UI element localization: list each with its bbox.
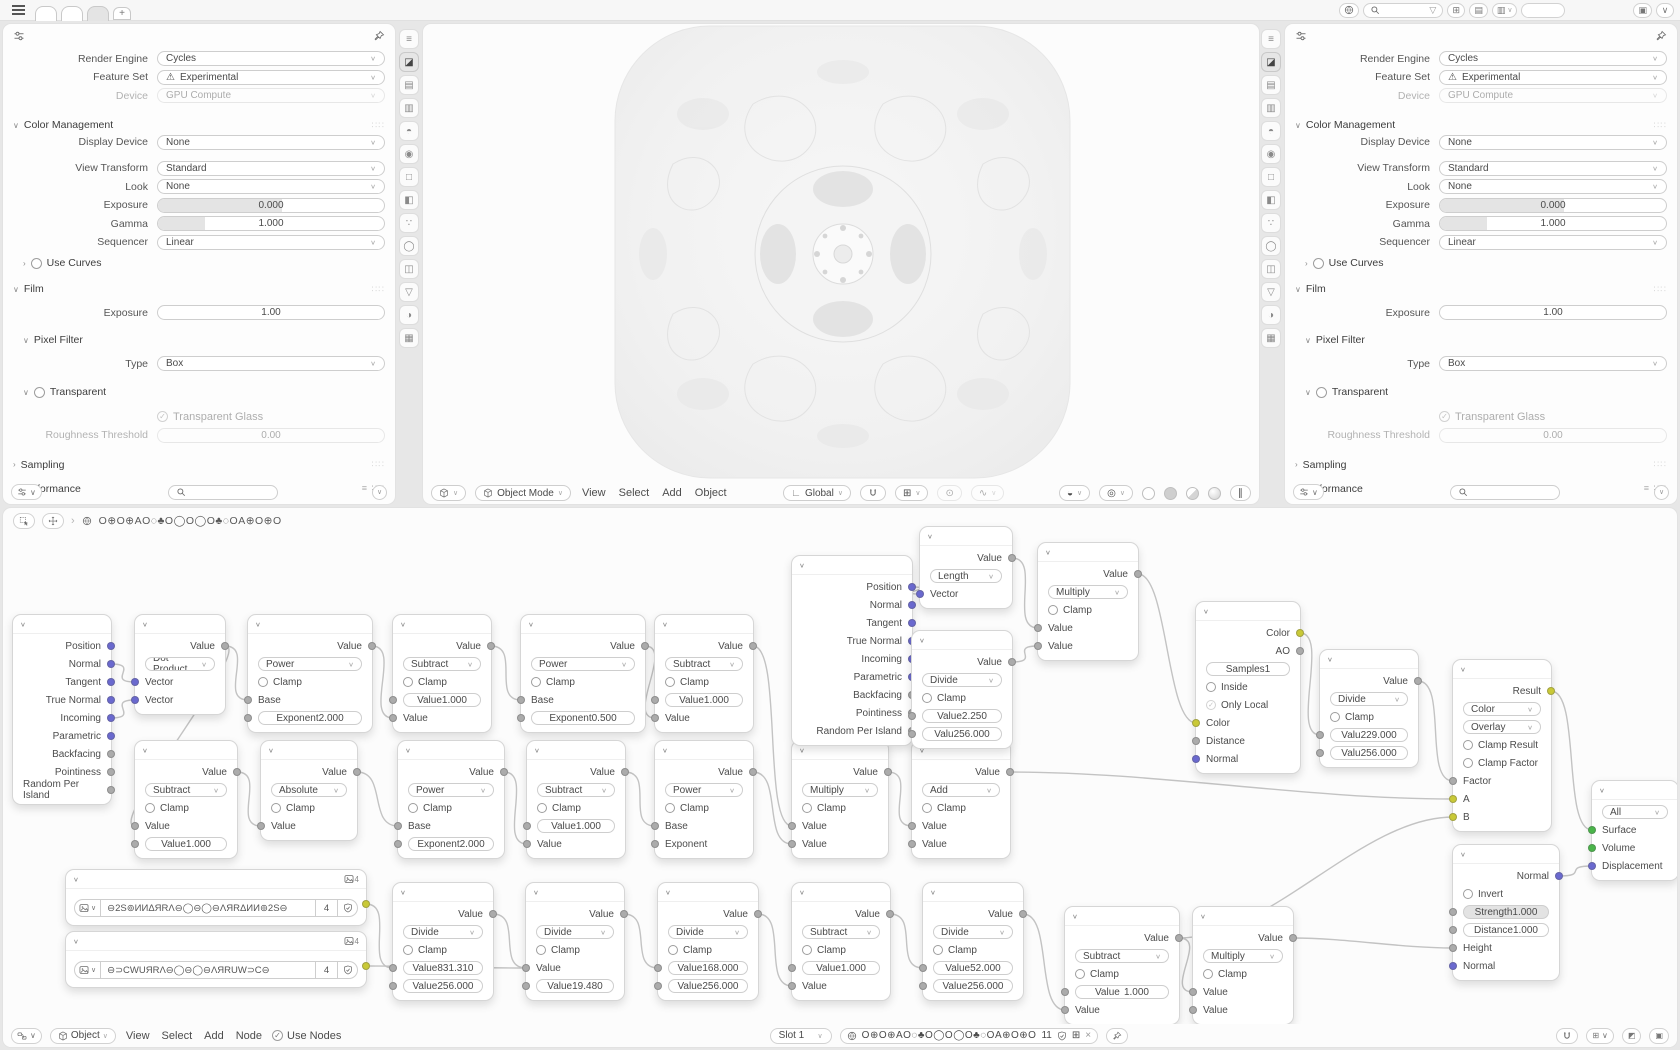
output-socket[interactable] [1006, 768, 1014, 776]
editor-type-button[interactable]: ∨ [1293, 484, 1324, 500]
checkbox-clamp[interactable] [408, 803, 418, 813]
node-geo2[interactable]: ∨PositionNormalTangentTrue NormalIncomin… [791, 555, 913, 746]
properties-tab-data[interactable]: ▽ [1261, 282, 1281, 302]
output-socket[interactable] [754, 910, 762, 918]
node-div19[interactable]: ∨ValueDivide∨ClampValu229.000Valu256.000 [1319, 649, 1419, 768]
input-socket[interactable] [1588, 826, 1596, 834]
properties-tab-physics[interactable]: ◯ [399, 236, 419, 256]
input-socket[interactable] [1061, 1006, 1069, 1014]
snap-settings-dropdown[interactable]: ⊞∨ [895, 485, 929, 501]
use-nodes-checkbox[interactable]: ✓Use Nodes [272, 1030, 341, 1042]
checkbox-clamp[interactable] [536, 945, 546, 955]
gamma-slider[interactable]: 1.000 [157, 216, 385, 231]
input-socket[interactable] [1192, 719, 1200, 727]
value-field-value[interactable]: Value831.310 [403, 961, 483, 975]
properties-search-input[interactable] [168, 485, 278, 500]
input-socket[interactable] [1449, 777, 1457, 785]
value-field-value[interactable]: Value1.000 [665, 693, 743, 707]
value-field-valu[interactable]: Valu229.000 [1330, 728, 1408, 742]
checkbox-clamp[interactable] [802, 945, 812, 955]
section-sampling[interactable]: ›Sampling∷∷ [1295, 459, 1667, 471]
node-div25[interactable]: ∨ValueDivide∨ClampValueValue19.480 [525, 882, 625, 1001]
menu-add[interactable]: Add [660, 487, 684, 499]
node-imgA[interactable]: ∨4∨⊖2S⊚ИИΔЯRΛ⊖◯⊖◯⊖ΛЯRΔИИ⊚2S⊖4 [65, 869, 367, 926]
collapse-arrow-icon[interactable]: ∨ [142, 746, 148, 753]
value-field-value[interactable]: Value2.250 [922, 709, 1002, 723]
checkbox-inside[interactable] [1206, 682, 1216, 692]
collapse-arrow-icon[interactable]: ∨ [930, 888, 936, 895]
properties-tab-output[interactable]: ▤ [1261, 75, 1281, 95]
move-tool-icon[interactable] [42, 513, 64, 529]
section-transparent[interactable]: ∨Transparent [23, 386, 385, 398]
input-socket[interactable] [788, 840, 796, 848]
menu-view[interactable]: View [124, 1030, 152, 1042]
properties-tab-data[interactable]: ▽ [399, 282, 419, 302]
value-field-value[interactable]: Value168.000 [668, 961, 748, 975]
node-div17[interactable]: ∨ValueDivide∨ClampValue2.250Valu256.000 [911, 630, 1013, 749]
operation-dropdown-divide[interactable]: Divide∨ [536, 925, 614, 939]
input-socket[interactable] [1189, 988, 1197, 996]
checkbox-clamp[interactable] [145, 803, 155, 813]
checkbox-only-local[interactable]: ✓ [1206, 700, 1216, 710]
shading-wireframe-button[interactable] [1142, 487, 1155, 500]
properties-tab-object[interactable]: □ [1261, 167, 1281, 187]
checkbox-clamp[interactable] [665, 677, 675, 687]
material-slot-dropdown[interactable]: Slot 1∨ [770, 1028, 832, 1044]
output-socket[interactable] [749, 642, 757, 650]
paste-icon[interactable]: ▤ [1469, 3, 1488, 18]
input-socket[interactable] [1192, 755, 1200, 763]
value-field-value[interactable]: Value256.000 [933, 979, 1013, 993]
input-socket[interactable] [394, 840, 402, 848]
screen-icon[interactable]: ▣ [1633, 3, 1652, 18]
node-sub6[interactable]: ∨ValueSubtract∨ClampValue1.000Value [654, 614, 754, 733]
properties-tab-output[interactable]: ▤ [399, 75, 419, 95]
snap-toggle[interactable] [860, 485, 886, 501]
output-socket[interactable] [1555, 872, 1563, 880]
operation-dropdown-dot-product[interactable]: Dot Product∨ [145, 657, 215, 671]
input-socket[interactable] [651, 840, 659, 848]
properties-tab-texture[interactable]: ▦ [1261, 328, 1281, 348]
input-socket[interactable] [1449, 795, 1457, 803]
node-imgB[interactable]: ∨4∨⊖⊃CWUЯRΛ⊖◯⊖◯⊖ΛЯRUW⊃C⊖4 [65, 931, 367, 988]
properties-tab-tool[interactable]: ≡ [1261, 29, 1281, 49]
menu-view[interactable]: View [580, 487, 608, 499]
node-sub7[interactable]: ∨ValueSubtract∨ClampValueValue1.000 [134, 740, 238, 859]
operation-dropdown-subtract[interactable]: Subtract∨ [403, 657, 481, 671]
checkbox-clamp[interactable] [1048, 605, 1058, 615]
unlink-material-icon[interactable]: × [1085, 1030, 1091, 1041]
output-socket[interactable] [1296, 629, 1304, 637]
browse-image-button[interactable]: ∨ [74, 961, 101, 979]
output-socket[interactable] [641, 642, 649, 650]
node-mul30[interactable]: ∨ValueMultiply∨ClampValueValue [1192, 906, 1294, 1025]
operation-dropdown-add[interactable]: Add∨ [922, 783, 1000, 797]
transparent-checkbox[interactable] [34, 387, 45, 398]
film-exposure-slider[interactable]: 1.00 [1439, 305, 1667, 320]
copy-icon[interactable]: ⊞ [1447, 3, 1465, 18]
device-dropdown[interactable]: GPU Compute∨ [157, 88, 385, 103]
input-socket[interactable] [1061, 988, 1069, 996]
checkbox-clamp[interactable] [403, 677, 413, 687]
collapse-arrow-icon[interactable]: ∨ [1599, 786, 1605, 793]
input-socket[interactable] [908, 730, 916, 738]
collapse-arrow-icon[interactable]: ∨ [268, 746, 274, 753]
collapse-arrow-icon[interactable]: ∨ [1460, 850, 1466, 857]
value-field-valu[interactable]: Valu256.000 [922, 727, 1002, 741]
output-socket[interactable] [1175, 934, 1183, 942]
node-pow9[interactable]: ∨ValuePower∨ClampBaseExponent2.000 [397, 740, 505, 859]
checkbox-clamp[interactable] [1330, 712, 1340, 722]
input-socket[interactable] [244, 714, 252, 722]
value-field-value[interactable]: Value19.480 [536, 979, 614, 993]
properties-tab-scene[interactable]: ◓ [399, 121, 419, 141]
properties-search-input[interactable] [1450, 485, 1560, 500]
operation-dropdown-absolute[interactable]: Absolute∨ [271, 783, 347, 797]
node-len15[interactable]: ∨ValueLength∨Vector [919, 526, 1013, 609]
input-socket[interactable] [908, 712, 916, 720]
checkbox-clamp[interactable] [271, 803, 281, 813]
node-canvas[interactable]: ∨PositionNormalTangentTrue NormalIncomin… [3, 508, 1677, 1047]
filter-type-dropdown[interactable]: Box∨ [1439, 356, 1667, 371]
value-field-value[interactable]: Value1.000 [403, 693, 481, 707]
fake-user-shield-icon[interactable] [338, 899, 358, 917]
collapse-arrow-icon[interactable]: ∨ [662, 746, 668, 753]
node-mul12[interactable]: ∨ValueMultiply∨ClampValueValue [791, 740, 889, 859]
region-toggle[interactable]: ▣ [1649, 1028, 1669, 1044]
checkbox-clamp[interactable] [258, 677, 268, 687]
value-field-strength[interactable]: Strength1.000 [1463, 905, 1549, 919]
output-socket[interactable] [353, 768, 361, 776]
transparent-checkbox[interactable] [1316, 387, 1327, 398]
viewport-canvas[interactable] [423, 24, 1259, 504]
section-sampling[interactable]: ›Sampling∷∷ [13, 459, 385, 471]
checkbox-clamp[interactable] [922, 803, 932, 813]
collapse-arrow-icon[interactable]: ∨ [1460, 665, 1466, 672]
output-socket[interactable] [886, 910, 894, 918]
checkbox-clamp[interactable] [922, 693, 932, 703]
collapse-arrow-icon[interactable]: ∨ [1072, 912, 1078, 919]
operation-dropdown-subtract[interactable]: Subtract∨ [802, 925, 880, 939]
output-socket[interactable] [1547, 687, 1555, 695]
input-socket[interactable] [1316, 731, 1324, 739]
editor-type-button[interactable]: ∨ [11, 484, 42, 500]
collapse-arrow-icon[interactable]: ∨ [533, 888, 539, 895]
properties-tab-constraints[interactable]: ◫ [399, 259, 419, 279]
collapse-arrow-icon[interactable]: ∨ [400, 888, 406, 895]
fake-user-shield-icon[interactable] [338, 961, 358, 979]
input-socket[interactable] [1034, 624, 1042, 632]
xray-toggle[interactable]: ◒∨ [1059, 485, 1090, 501]
collapse-arrow-icon[interactable]: ∨ [919, 636, 925, 643]
pin-icon[interactable] [373, 30, 385, 42]
roughness-threshold-slider[interactable]: 0.00 [157, 428, 385, 443]
value-field-value[interactable]: Value1.000 [802, 961, 880, 975]
editor-type-button[interactable]: ∨ [11, 1028, 42, 1044]
shader-type-dropdown[interactable]: Object∨ [50, 1028, 116, 1044]
operation-dropdown-color[interactable]: Color∨ [1463, 702, 1541, 716]
node-pow11[interactable]: ∨ValuePower∨ClampBaseExponent [654, 740, 754, 859]
input-socket[interactable] [389, 714, 397, 722]
node-geo1[interactable]: ∨PositionNormalTangentTrue NormalIncomin… [12, 614, 112, 805]
properties-tab-material[interactable]: ◑ [399, 305, 419, 325]
input-socket[interactable] [517, 714, 525, 722]
output-socket[interactable] [1289, 934, 1297, 942]
input-socket[interactable] [131, 840, 139, 848]
output-socket[interactable] [500, 768, 508, 776]
scene-icon[interactable] [1339, 3, 1359, 18]
editor-type-button[interactable]: ∨ [431, 485, 466, 501]
film-exposure-slider[interactable]: 1.00 [157, 305, 385, 320]
menu-select[interactable]: Select [617, 487, 652, 499]
menu-icon[interactable] [12, 9, 25, 11]
output-socket[interactable] [1414, 677, 1422, 685]
section-use-curves[interactable]: ›Use Curves [23, 257, 385, 269]
options-chevron-icon[interactable]: ∨ [1654, 485, 1669, 500]
device-dropdown[interactable]: GPU Compute∨ [1439, 88, 1667, 103]
output-socket[interactable] [620, 910, 628, 918]
value-field-exponent[interactable]: Exponent2.000 [258, 711, 362, 725]
workspace-tab-1[interactable] [35, 6, 57, 21]
operation-dropdown-subtract[interactable]: Subtract∨ [537, 783, 615, 797]
collapse-arrow-icon[interactable]: ∨ [20, 620, 26, 627]
view-transform-dropdown[interactable]: Standard∨ [1439, 161, 1667, 176]
value-field-value[interactable]: Value1.000 [1075, 985, 1169, 999]
input-socket[interactable] [916, 590, 924, 598]
properties-tab-render[interactable]: ◪ [399, 52, 419, 72]
collapse-arrow-icon[interactable]: ∨ [799, 746, 805, 753]
operation-dropdown-divide[interactable]: Divide∨ [933, 925, 1013, 939]
operation-dropdown-all[interactable]: All∨ [1602, 805, 1668, 819]
input-socket[interactable] [651, 696, 659, 704]
output-socket[interactable] [487, 642, 495, 650]
node-mul16[interactable]: ∨ValueMultiply∨ClampValueValue [1037, 542, 1139, 661]
node-div24[interactable]: ∨ValueDivide∨ClampValue831.310Value256.0… [392, 882, 494, 1001]
mode-dropdown[interactable]: Object Mode∨ [475, 485, 571, 501]
transform-orientation-dropdown[interactable]: ∟Global∨ [783, 485, 851, 501]
input-socket[interactable] [1192, 737, 1200, 745]
checkbox-clamp[interactable] [1075, 969, 1085, 979]
checkbox-clamp[interactable] [802, 803, 812, 813]
node-pow3[interactable]: ∨ValuePower∨ClampBaseExponent2.000 [247, 614, 373, 733]
operation-dropdown-overlay[interactable]: Overlay∨ [1463, 720, 1541, 734]
input-socket[interactable] [131, 822, 139, 830]
collapse-arrow-icon[interactable]: ∨ [534, 746, 540, 753]
value-field-value[interactable]: Value256.000 [403, 979, 483, 993]
input-socket[interactable] [389, 696, 397, 704]
sequencer-dropdown[interactable]: Linear∨ [1439, 235, 1667, 250]
pin-icon[interactable] [1106, 1028, 1128, 1044]
material-users-count[interactable]: 11 [1041, 1030, 1051, 1041]
operation-dropdown-subtract[interactable]: Subtract∨ [145, 783, 227, 797]
options-chevron-icon[interactable]: ∨ [372, 485, 387, 500]
input-socket[interactable] [131, 696, 139, 704]
operation-dropdown-divide[interactable]: Divide∨ [668, 925, 748, 939]
overlay-toggle[interactable]: ◩ [1622, 1028, 1642, 1044]
output-socket[interactable] [908, 583, 916, 591]
properties-tab-world[interactable]: ◉ [1261, 144, 1281, 164]
output-socket[interactable] [1008, 554, 1016, 562]
value-field-samples[interactable]: Samples1 [1206, 662, 1290, 676]
section-color-management[interactable]: ∨Color Management∷∷ [1295, 119, 1667, 131]
shading-rendered-button[interactable] [1208, 487, 1221, 500]
operation-dropdown-multiply[interactable]: Multiply∨ [1203, 949, 1283, 963]
overlays-dropdown[interactable]: ◎∨ [1099, 485, 1133, 501]
output-socket[interactable] [107, 696, 115, 704]
output-socket[interactable] [1296, 647, 1304, 655]
properties-tab-particles[interactable]: ∵ [1261, 213, 1281, 233]
operation-dropdown-subtract[interactable]: Subtract∨ [1075, 949, 1169, 963]
menu-add[interactable]: Add [202, 1030, 226, 1042]
properties-tab-object[interactable]: □ [399, 167, 419, 187]
node-mix20[interactable]: ∨ResultColor∨Overlay∨Clamp ResultClamp F… [1452, 659, 1552, 832]
proportional-editing-toggle[interactable]: ⊙ [937, 485, 961, 501]
collapse-arrow-icon[interactable]: ∨ [799, 561, 805, 568]
value-field-value[interactable]: Value256.000 [668, 979, 748, 993]
node-sub27[interactable]: ∨ValueSubtract∨ClampValue1.000Value [791, 882, 891, 1001]
pause-render-button[interactable]: ∥ [1230, 485, 1251, 501]
input-socket[interactable] [908, 840, 916, 848]
workspace-tab-3[interactable] [87, 6, 109, 21]
output-socket[interactable] [107, 786, 115, 794]
checkbox-clamp[interactable] [665, 803, 675, 813]
input-socket[interactable] [919, 964, 927, 972]
input-socket[interactable] [788, 982, 796, 990]
output-socket[interactable] [362, 962, 370, 970]
section-film[interactable]: ∨Film∷∷ [1295, 283, 1667, 295]
operation-dropdown-divide[interactable]: Divide∨ [1330, 692, 1408, 706]
input-socket[interactable] [1449, 926, 1457, 934]
snap-settings-dropdown[interactable]: ⊞ ∨ [1586, 1028, 1614, 1044]
render-engine-dropdown[interactable]: Cycles∨ [1439, 51, 1667, 66]
feature-set-dropdown[interactable]: ⚠Experimental∨ [157, 70, 385, 85]
menu-node[interactable]: Node [234, 1030, 264, 1042]
collapse-arrow-icon[interactable]: ∨ [1200, 912, 1206, 919]
proportional-falloff-dropdown[interactable]: ∿∨ [971, 485, 1005, 501]
input-socket[interactable] [522, 964, 530, 972]
render-engine-dropdown[interactable]: Cycles∨ [157, 51, 385, 66]
input-socket[interactable] [1449, 962, 1457, 970]
collapse-arrow-icon[interactable]: ∨ [528, 620, 534, 627]
input-socket[interactable] [651, 714, 659, 722]
properties-tab-world[interactable]: ◉ [399, 144, 419, 164]
new-material-icon[interactable]: ⊞ [1072, 1030, 1080, 1041]
shading-material-button[interactable] [1186, 487, 1199, 500]
properties-tab-physics[interactable]: ◯ [1261, 236, 1281, 256]
output-socket[interactable] [107, 714, 115, 722]
output-socket[interactable] [362, 900, 370, 908]
input-socket[interactable] [523, 840, 531, 848]
output-socket[interactable] [489, 910, 497, 918]
output-socket[interactable] [107, 660, 115, 668]
properties-tab-modifiers[interactable]: ◧ [1261, 190, 1281, 210]
input-socket[interactable] [131, 678, 139, 686]
input-socket[interactable] [1449, 944, 1457, 952]
input-socket[interactable] [654, 982, 662, 990]
input-socket[interactable] [394, 822, 402, 830]
operation-dropdown-multiply[interactable]: Multiply∨ [802, 783, 878, 797]
collapse-arrow-icon[interactable]: ∨ [255, 620, 261, 627]
input-socket[interactable] [919, 982, 927, 990]
output-socket[interactable] [884, 768, 892, 776]
section-transparent[interactable]: ∨Transparent [1305, 386, 1667, 398]
input-socket[interactable] [1316, 749, 1324, 757]
operation-dropdown-multiply[interactable]: Multiply∨ [1048, 585, 1128, 599]
output-socket[interactable] [368, 642, 376, 650]
checkbox-clamp[interactable] [668, 945, 678, 955]
image-name-field[interactable]: ⊖2S⊚ИИΔЯRΛ⊖◯⊖◯⊖ΛЯRΔИИ⊚2S⊖ [101, 899, 316, 917]
properties-tab-particles[interactable]: ∵ [399, 213, 419, 233]
menu-select[interactable]: Select [160, 1030, 195, 1042]
output-socket[interactable] [908, 601, 916, 609]
properties-tab-scene[interactable]: ◓ [1261, 121, 1281, 141]
operation-dropdown-length[interactable]: Length∨ [930, 569, 1002, 583]
value-field-value[interactable]: Value1.000 [145, 837, 227, 851]
output-socket[interactable] [107, 642, 115, 650]
node-out21[interactable]: ∨All∨SurfaceVolumeDisplacement [1591, 780, 1678, 881]
properties-tab-view-layer[interactable]: ▥ [1261, 98, 1281, 118]
shader-node-editor[interactable]: ∨PositionNormalTangentTrue NormalIncomin… [2, 507, 1678, 1048]
shading-solid-button[interactable] [1164, 487, 1177, 500]
output-socket[interactable] [107, 732, 115, 740]
collapse-arrow-icon[interactable]: ∨ [1203, 607, 1209, 614]
display-device-dropdown[interactable]: None∨ [157, 135, 385, 150]
properties-tab-constraints[interactable]: ◫ [1261, 259, 1281, 279]
filter-icon[interactable]: ▽ [1429, 5, 1436, 16]
input-socket[interactable] [1449, 813, 1457, 821]
collapse-arrow-icon[interactable]: ∨ [405, 746, 411, 753]
add-workspace-button[interactable]: + [113, 7, 131, 20]
workspace-tab-2[interactable] [61, 6, 83, 21]
feature-set-dropdown[interactable]: ⚠Experimental∨ [1439, 70, 1667, 85]
fake-user-shield-icon[interactable] [1057, 1031, 1067, 1041]
checkbox-clamp-result[interactable] [1463, 740, 1473, 750]
node-abs8[interactable]: ∨ValueAbsolute∨ClampValue [260, 740, 358, 841]
value-field-value[interactable]: Value1.000 [537, 819, 615, 833]
properties-tab-material[interactable]: ◑ [1261, 305, 1281, 325]
exposure-slider[interactable]: 0.000 [157, 198, 385, 213]
value-field-value[interactable]: Value52.000 [933, 961, 1013, 975]
node-pow5[interactable]: ∨ValuePower∨ClampBaseExponent0.500 [520, 614, 646, 733]
value-field-valu[interactable]: Valu256.000 [1330, 746, 1408, 760]
viewport-3d[interactable]: ∨ Object Mode∨ View Select Add Object ∟G… [422, 23, 1260, 505]
input-socket[interactable] [1588, 844, 1596, 852]
output-socket[interactable] [233, 768, 241, 776]
transparent-glass-checkbox[interactable]: ✓ [1439, 411, 1450, 422]
collapse-arrow-icon[interactable]: ∨ [73, 937, 79, 944]
node-ao18[interactable]: ∨ColorAOSamples1Inside✓Only LocalColorDi… [1195, 601, 1301, 774]
output-socket[interactable] [908, 619, 916, 627]
collapse-arrow-icon[interactable]: ∨ [1327, 655, 1333, 662]
image-name-field[interactable]: ⊖⊃CWUЯRΛ⊖◯⊖◯⊖ΛЯRUW⊃C⊖ [101, 961, 316, 979]
input-socket[interactable] [908, 822, 916, 830]
output-socket[interactable] [221, 642, 229, 650]
output-socket[interactable] [1134, 570, 1142, 578]
checkbox-clamp-factor[interactable] [1463, 758, 1473, 768]
checkbox-clamp[interactable] [531, 677, 541, 687]
input-socket[interactable] [257, 822, 265, 830]
view-layer-input[interactable] [1521, 3, 1565, 18]
node-div26[interactable]: ∨ValueDivide∨ClampValue168.000Value256.0… [657, 882, 759, 1001]
input-socket[interactable] [522, 982, 530, 990]
node-sub10[interactable]: ∨ValueSubtract∨ClampValue1.000Value [526, 740, 626, 859]
display-device-dropdown[interactable]: None∨ [1439, 135, 1667, 150]
input-socket[interactable] [1588, 862, 1596, 870]
output-socket[interactable] [107, 750, 115, 758]
use-curves-checkbox[interactable] [31, 258, 42, 269]
operation-dropdown-power[interactable]: Power∨ [408, 783, 494, 797]
use-curves-checkbox[interactable] [1313, 258, 1324, 269]
